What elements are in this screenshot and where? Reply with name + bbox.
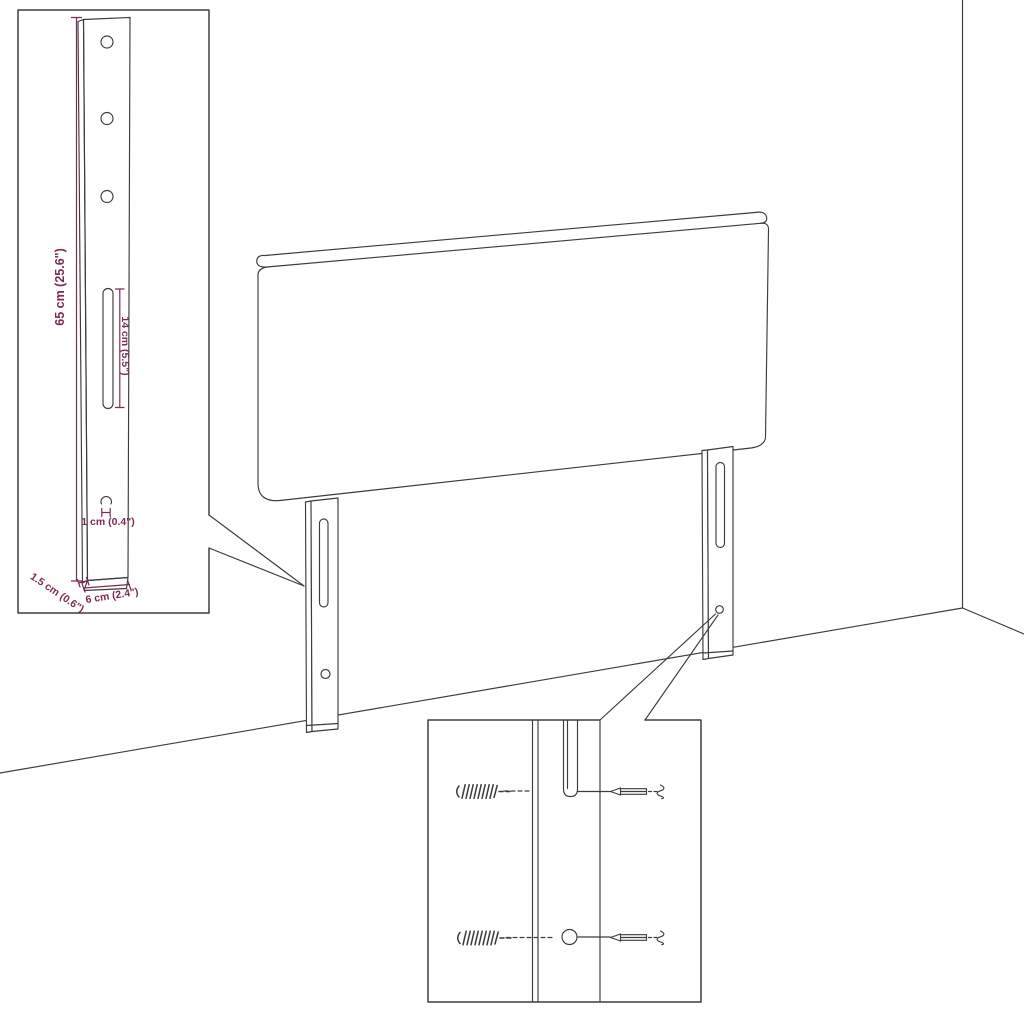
diagram-lineart (0, 0, 1024, 1024)
floor-line-right (963, 608, 1024, 634)
headboard-body (258, 223, 769, 500)
screw-detail-inset (428, 720, 701, 1002)
inset-border (428, 720, 701, 1002)
callout-line (209, 548, 304, 586)
headboard-panel (257, 212, 769, 501)
bracket-detail-callout (209, 515, 304, 586)
callout-line (209, 515, 304, 586)
dimension-label-height: 65 cm (25.6") (53, 248, 67, 326)
dimension-label-slot-length: 14 cm (5.5") (119, 316, 131, 375)
assembly-diagram-canvas: 65 cm (25.6") 14 cm (5.5") 1 cm (0.4") 1… (0, 0, 1024, 1024)
left-leg (306, 498, 339, 733)
callout-line (645, 615, 718, 720)
left-leg-front-face (311, 498, 338, 732)
dimension-label-hole-offset: 1 cm (0.4") (81, 516, 134, 528)
right-leg (702, 447, 733, 660)
right-leg-front-face (708, 447, 734, 659)
